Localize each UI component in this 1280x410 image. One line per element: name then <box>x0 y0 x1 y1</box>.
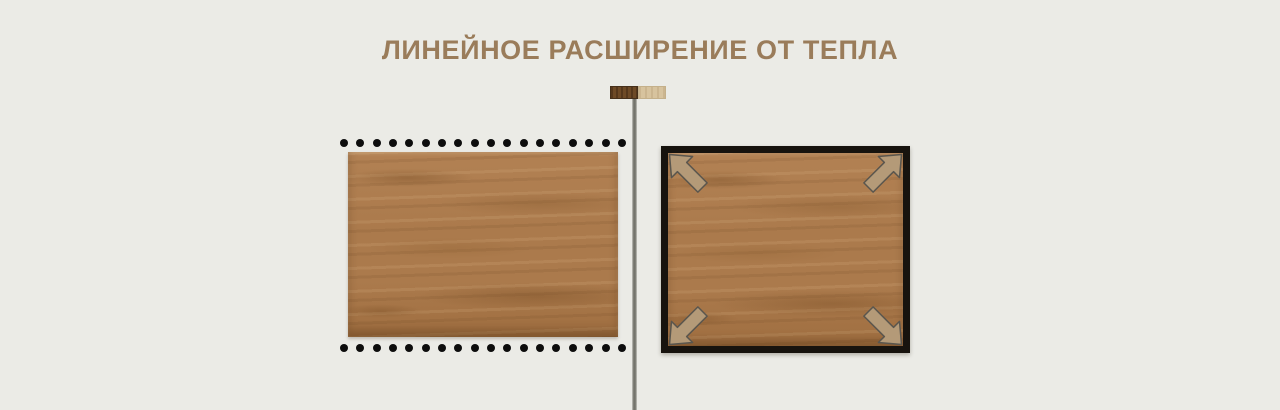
dotted-gap-line-bottom <box>340 344 626 352</box>
dot <box>389 139 397 147</box>
dot <box>585 139 593 147</box>
dot <box>618 139 626 147</box>
dot <box>373 139 381 147</box>
dot <box>503 139 511 147</box>
wood-panel-free <box>348 152 618 337</box>
dot <box>503 344 511 352</box>
dot <box>422 139 430 147</box>
vertical-divider <box>632 99 637 410</box>
dot <box>405 139 413 147</box>
page-title: ЛИНЕЙНОЕ РАСШИРЕНИЕ ОТ ТЕПЛА <box>0 35 1280 65</box>
dot <box>520 344 528 352</box>
dot <box>438 344 446 352</box>
dot <box>471 139 479 147</box>
dot <box>373 344 381 352</box>
framed-panel <box>661 146 910 353</box>
dot <box>487 344 495 352</box>
dot <box>405 344 413 352</box>
light-wood-swatch-icon <box>638 86 666 99</box>
dot <box>422 344 430 352</box>
dot <box>536 139 544 147</box>
free-expansion-figure <box>340 139 626 352</box>
dot <box>602 344 610 352</box>
dot <box>520 139 528 147</box>
dot <box>569 139 577 147</box>
dark-wood-swatch-icon <box>610 86 638 99</box>
dot <box>438 139 446 147</box>
wood-swatch-legend <box>610 86 666 99</box>
heat-expansion-infographic: ЛИНЕЙНОЕ РАСШИРЕНИЕ ОТ ТЕПЛА <box>0 0 1280 410</box>
dot <box>536 344 544 352</box>
dot <box>552 344 560 352</box>
dot <box>618 344 626 352</box>
dot <box>471 344 479 352</box>
dot <box>585 344 593 352</box>
dot <box>454 139 462 147</box>
dot <box>340 139 348 147</box>
dot <box>487 139 495 147</box>
dot <box>602 139 610 147</box>
dot <box>340 344 348 352</box>
dot <box>569 344 577 352</box>
dot <box>356 139 364 147</box>
dot <box>389 344 397 352</box>
dot <box>356 344 364 352</box>
dot <box>552 139 560 147</box>
dotted-gap-line-top <box>340 139 626 147</box>
dot <box>454 344 462 352</box>
